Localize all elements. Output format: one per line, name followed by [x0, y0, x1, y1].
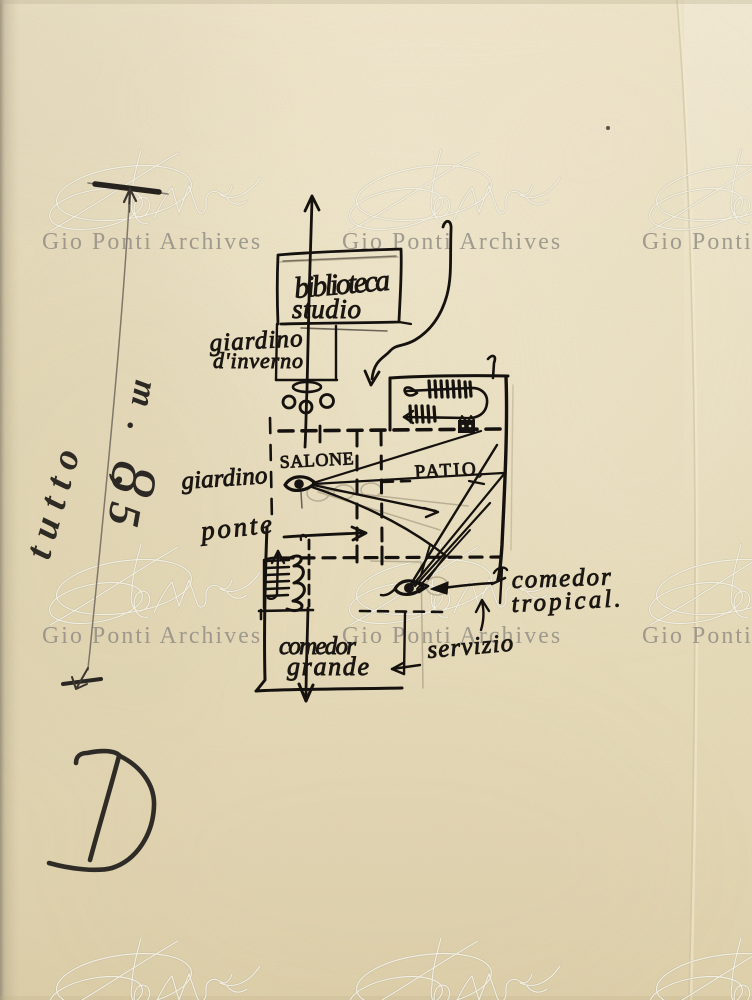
- svg-text:grande: grande: [287, 652, 369, 681]
- svg-text:tropical.: tropical.: [511, 585, 621, 618]
- svg-text:SALONE: SALONE: [279, 448, 354, 472]
- svg-text:studio: studio: [292, 294, 361, 324]
- svg-text:d'inverno: d'inverno: [213, 348, 303, 373]
